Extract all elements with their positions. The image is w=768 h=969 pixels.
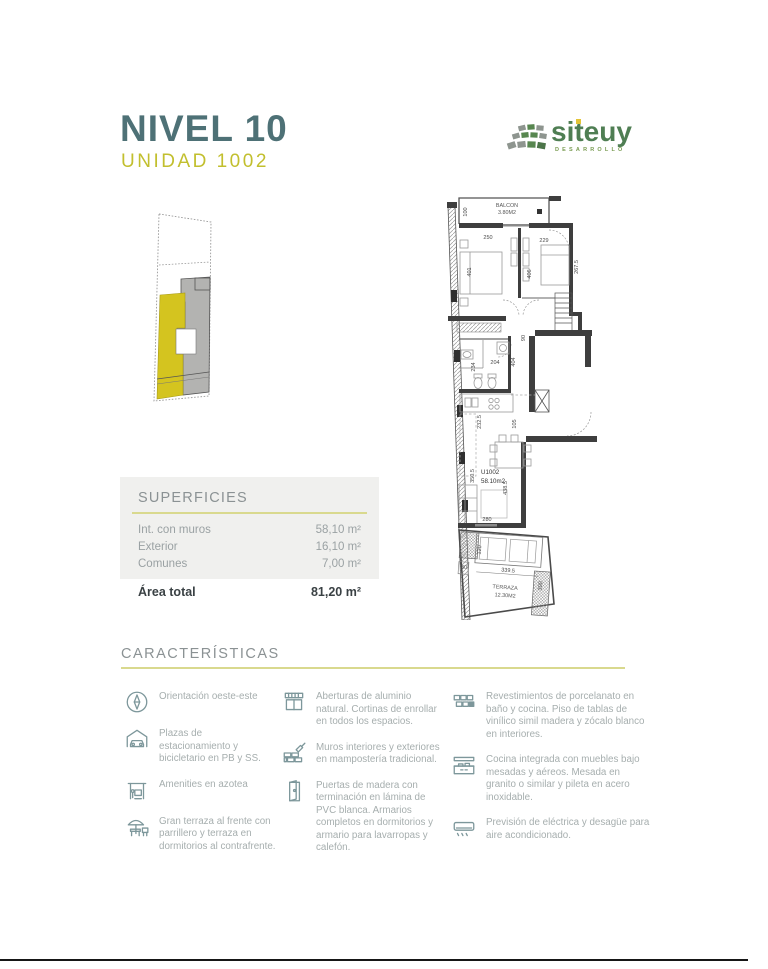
superficies-row: Comunes 7,00 m² <box>138 556 361 573</box>
unit-area: 58.10m2 <box>481 478 506 485</box>
feature-item: Muros interiores y exteriores en mampost… <box>281 740 443 767</box>
balcon-area: 3.80M2 <box>498 210 516 216</box>
svg-text:100: 100 <box>463 207 469 216</box>
feature-text: Muros interiores y exteriores en mampost… <box>316 742 443 767</box>
feature-item: Plazas de estacionamiento y bicicletario… <box>124 726 276 766</box>
svg-text:280: 280 <box>482 517 491 523</box>
kitchen-icon <box>451 752 479 778</box>
feature-text: Plazas de estacionamiento y bicicletario… <box>159 728 276 766</box>
row-value: 58,10 m² <box>316 522 361 539</box>
svg-text:229: 229 <box>539 238 548 244</box>
features-column-2: Aberturas de aluminio natural. Cortinas … <box>281 689 443 866</box>
svg-text:406: 406 <box>527 269 533 278</box>
features-column-3: Revestimientos de porcelanato en baño y … <box>451 689 651 853</box>
svg-text:105: 105 <box>512 419 518 428</box>
caracteristicas-rule <box>121 667 625 669</box>
terraza-area: 12.30M2 <box>494 592 515 599</box>
feature-item: Puertas de madera con terminación en lám… <box>281 778 443 855</box>
features-column-1: Orientación oeste-este Plazas de estacio… <box>124 689 276 864</box>
total-value: 81,20 m² <box>311 585 361 599</box>
svg-text:438.5: 438.5 <box>503 481 509 495</box>
feature-item: Orientación oeste-este <box>124 689 276 715</box>
svg-text:90: 90 <box>521 335 527 341</box>
window-icon <box>281 689 309 715</box>
superficies-row: Exterior 16,10 m² <box>138 539 361 556</box>
total-label: Área total <box>138 585 196 599</box>
feature-text: Cocina integrada con muebles bajo mesada… <box>486 754 651 804</box>
caracteristicas-title: CARACTERÍSTICAS <box>121 646 280 662</box>
feature-text: Amenities en azotea <box>159 779 248 803</box>
feature-text: Orientación oeste-este <box>159 691 258 715</box>
logo-name: siteuy <box>551 116 632 148</box>
tiles-icon <box>451 689 479 715</box>
svg-text:232.5: 232.5 <box>477 415 483 429</box>
unit-label: U1002 <box>481 469 500 476</box>
feature-item: Cocina integrada con muebles bajo mesada… <box>451 752 651 804</box>
page-subtitle: UNIDAD 1002 <box>121 151 269 173</box>
svg-text:120: 120 <box>477 545 484 555</box>
terrace-icon <box>124 814 152 840</box>
logo-mosaic-icon <box>503 122 549 162</box>
feature-text: Gran terraza al frente con parrillero y … <box>159 816 276 854</box>
feature-item: Amenities en azotea <box>124 777 276 803</box>
feature-text: Puertas de madera con terminación en lám… <box>316 780 443 855</box>
svg-text:204: 204 <box>490 360 499 366</box>
superficies-panel: SUPERFICIES Int. con muros 58,10 m² Exte… <box>120 477 379 605</box>
area-total-row: Área total 81,20 m² <box>120 579 379 605</box>
row-label: Int. con muros <box>138 522 211 539</box>
feature-item: Previsión de eléctrica y desagüe para ai… <box>451 815 651 842</box>
row-label: Comunes <box>138 556 187 573</box>
page-bottom-rule <box>0 959 748 961</box>
svg-text:30: 30 <box>461 565 467 571</box>
svg-text:234: 234 <box>471 362 477 371</box>
svg-text:250: 250 <box>483 235 492 241</box>
svg-text:267.5: 267.5 <box>574 260 580 274</box>
ac-icon <box>451 815 479 841</box>
svg-text:401: 401 <box>467 267 473 276</box>
feature-item: Revestimientos de porcelanato en baño y … <box>451 689 651 741</box>
feature-text: Revestimientos de porcelanato en baño y … <box>486 691 651 741</box>
logo-accent-tick-icon <box>576 119 581 124</box>
floor-plan: BALCON 3.80M2 100 250 229 401 406 <box>445 190 620 620</box>
feature-text: Aberturas de aluminio natural. Cortinas … <box>316 691 443 729</box>
row-value: 7,00 m² <box>322 556 361 573</box>
svg-text:404: 404 <box>511 357 517 366</box>
amenities-icon <box>124 777 152 803</box>
row-label: Exterior <box>138 539 178 556</box>
row-value: 16,10 m² <box>316 539 361 556</box>
svg-text:350.5: 350.5 <box>470 469 476 483</box>
feature-item: Gran terraza al frente con parrillero y … <box>124 814 276 854</box>
keyplan <box>133 208 233 408</box>
feature-text: Previsión de eléctrica y desagüe para ai… <box>486 817 651 842</box>
logo-tagline: DESARROLLO <box>555 147 626 153</box>
compass-icon <box>124 689 152 715</box>
svg-text:300: 300 <box>538 581 545 591</box>
garage-icon <box>124 726 152 752</box>
page-title: NIVEL 10 <box>120 108 288 150</box>
brand-logo: siteuy DESARROLLO <box>503 118 653 166</box>
feature-item: Aberturas de aluminio natural. Cortinas … <box>281 689 443 729</box>
superficies-row: Int. con muros 58,10 m² <box>138 522 361 539</box>
terraza-label: TERRAZA <box>492 584 518 592</box>
door-icon <box>281 778 309 804</box>
brick-wall-icon <box>281 740 309 766</box>
superficies-title: SUPERFICIES <box>120 477 379 512</box>
balcon-label: BALCON <box>496 203 518 209</box>
svg-text:339.5: 339.5 <box>501 567 515 574</box>
